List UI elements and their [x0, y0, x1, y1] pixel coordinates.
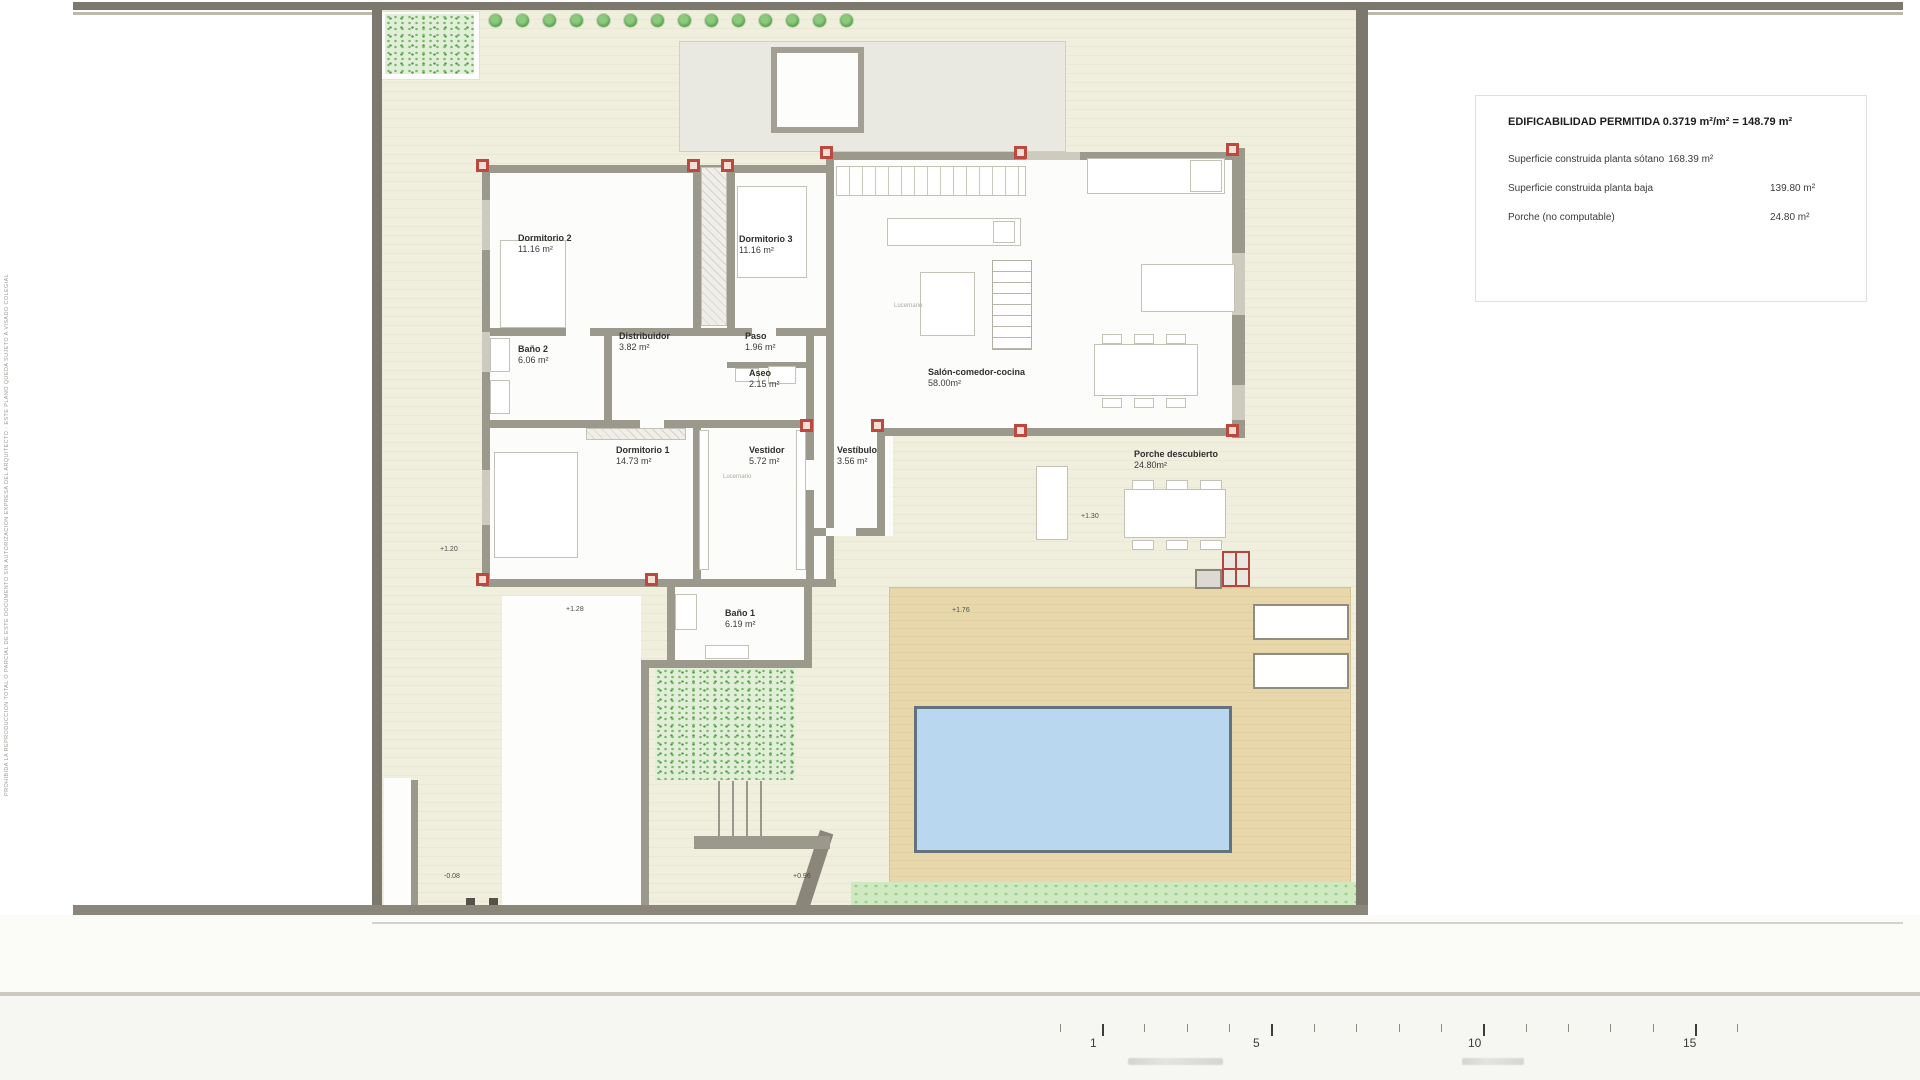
room-area: 11.16 m² — [518, 244, 668, 255]
plot-ground: Dormitorio 211.16 m²Dormitorio 311.16 m²… — [382, 10, 1356, 907]
room-area: 14.73 m² — [616, 456, 766, 467]
shrub-icon — [786, 14, 799, 27]
furniture — [1134, 398, 1154, 408]
scale-tick — [1441, 1024, 1442, 1032]
shrub-icon — [651, 14, 664, 27]
column-marker — [820, 146, 833, 159]
scale-tick — [1610, 1024, 1611, 1032]
shrub-icon — [759, 14, 772, 27]
wall — [641, 666, 649, 912]
level-annotation: +0.96 — [793, 873, 833, 882]
floor-plan-sheet: Dormitorio 211.16 m²Dormitorio 311.16 m²… — [0, 0, 1920, 1080]
column-marker — [871, 419, 884, 432]
furniture — [1190, 160, 1222, 192]
wall — [693, 165, 701, 336]
scale-tick — [1187, 1024, 1188, 1032]
tree-canopy — [385, 14, 474, 74]
room-name: Dormitorio 1 — [616, 445, 766, 456]
scale-number: 5 — [1253, 1036, 1277, 1050]
room-name: Vestíbulo — [837, 445, 987, 456]
north-boundary-thin-left — [73, 12, 380, 15]
scale-tick — [1060, 1024, 1061, 1032]
exterior-stairs — [706, 781, 768, 836]
scale-tick — [1314, 1024, 1315, 1032]
wall — [727, 165, 735, 328]
wall — [667, 587, 675, 666]
room-name: Paso — [745, 331, 895, 342]
room-area: 3.56 m² — [837, 456, 987, 467]
room-name: Baño 1 — [725, 608, 875, 619]
furniture — [705, 645, 749, 659]
room-label-bano-1: Baño 16.19 m² — [725, 608, 875, 630]
room-area: 58.00m² — [928, 378, 1078, 389]
east-boundary-line — [1356, 2, 1368, 912]
window-opening — [482, 200, 490, 250]
wall — [482, 579, 836, 587]
window-opening — [482, 470, 490, 525]
scale-number: 15 — [1683, 1036, 1707, 1050]
wall — [482, 165, 832, 173]
furniture — [1200, 540, 1222, 550]
window-opening — [1026, 152, 1080, 160]
furniture — [1102, 334, 1122, 344]
room-name: Dormitorio 2 — [518, 233, 668, 244]
scale-tick — [1653, 1024, 1654, 1032]
legend-label: Superficie construida planta baja — [1508, 183, 1653, 194]
scale-tick — [1568, 1024, 1569, 1032]
column-marker — [687, 159, 700, 172]
shrub-icon — [597, 14, 610, 27]
north-boundary-thin-right — [1368, 12, 1903, 15]
room-name: Porche descubierto — [1134, 449, 1284, 460]
illegible-caption — [1128, 1058, 1223, 1065]
door-opening — [640, 420, 664, 428]
room-label-salon: Salón-comedor-cocina58.00m² — [928, 367, 1078, 389]
column-marker — [476, 159, 489, 172]
window-opening — [1232, 385, 1245, 420]
level-annotation: +1.76 — [952, 607, 992, 616]
room-name: Aseo — [749, 368, 899, 379]
barbecue-grid — [1222, 551, 1250, 587]
road-surface — [0, 996, 1920, 1080]
garden-strip — [851, 882, 1356, 906]
shrub-icon — [570, 14, 583, 27]
west-boundary-line — [372, 2, 382, 912]
scale-tick — [1695, 1024, 1697, 1036]
scale-number: 1 — [1090, 1036, 1114, 1050]
legend-value: 139.80 m² — [1770, 183, 1815, 194]
legend-box: EDIFICABILIDAD PERMITIDA 0.3719 m²/m² = … — [1475, 95, 1867, 302]
room-area: 24.80m² — [1134, 460, 1284, 471]
furniture — [1200, 480, 1222, 490]
furniture — [1102, 398, 1122, 408]
shrub-icon — [516, 14, 529, 27]
room-area: 2.15 m² — [749, 379, 899, 390]
level-annotation: -0.08 — [444, 873, 484, 882]
wall — [411, 780, 418, 912]
room-area: 6.19 m² — [725, 619, 875, 630]
furniture — [1166, 334, 1186, 344]
skylight-roof — [679, 41, 1066, 152]
furniture — [1141, 264, 1235, 312]
wall — [885, 428, 1245, 436]
level-annotation: +1.28 — [566, 606, 606, 615]
scale-tick — [1356, 1024, 1357, 1032]
furniture — [1132, 540, 1154, 550]
wall — [694, 836, 830, 849]
outdoor-fixture — [1195, 569, 1222, 589]
illegible-caption — [1462, 1058, 1524, 1065]
shrub-icon — [624, 14, 637, 27]
shrub-icon — [489, 14, 502, 27]
shrub-icon — [705, 14, 718, 27]
scale-tick — [1526, 1024, 1527, 1032]
room-label-dormitorio-3: Dormitorio 311.16 m² — [739, 234, 889, 256]
level-annotation: +1.20 — [440, 546, 480, 555]
scale-number: 10 — [1468, 1036, 1492, 1050]
column-marker — [1226, 424, 1239, 437]
shrub-icon — [840, 14, 853, 27]
wardrobe — [586, 428, 686, 440]
chimney — [771, 47, 864, 133]
furniture — [490, 380, 510, 414]
column-marker — [1014, 146, 1027, 159]
swimming-pool — [914, 706, 1232, 853]
scale-tick — [1144, 1024, 1145, 1032]
furniture — [737, 186, 807, 278]
driveway — [384, 778, 411, 912]
furniture — [1166, 398, 1186, 408]
wall — [604, 328, 612, 428]
room-label-dormitorio-1: Dormitorio 114.73 m² — [616, 445, 766, 467]
shrub-icon — [678, 14, 691, 27]
furniture — [1132, 480, 1154, 490]
door-opening — [826, 528, 856, 536]
column-marker — [1226, 143, 1239, 156]
window-opening — [482, 332, 490, 372]
furniture — [494, 452, 578, 558]
kitchen-cabinet-run — [836, 166, 1026, 196]
shrub-icon — [543, 14, 556, 27]
driveway — [502, 596, 641, 912]
garden-patch — [655, 668, 795, 780]
scale-tick — [1229, 1024, 1230, 1032]
room-name: Dormitorio 3 — [739, 234, 889, 245]
scale-tick — [1399, 1024, 1400, 1032]
legend-row: Porche (no computable)24.80 m² — [1508, 212, 1838, 223]
furniture — [1036, 466, 1068, 540]
room-area: 11.16 m² — [739, 245, 889, 256]
legend-value: 168.39 m² — [1668, 154, 1713, 165]
wardrobe — [701, 167, 727, 326]
furniture — [1166, 540, 1188, 550]
margin-legal-note: PROHIBIDA LA REPRODUCCION TOTAL O PARCIA… — [4, 272, 17, 796]
north-boundary-line — [73, 2, 1903, 10]
room-label-porche: Porche descubierto24.80m² — [1134, 449, 1284, 471]
south-boundary-line — [73, 905, 1368, 915]
column-marker — [800, 419, 813, 432]
shrub-icon — [813, 14, 826, 27]
level-annotation: +1.30 — [1081, 513, 1121, 522]
scale-tick — [1102, 1024, 1104, 1036]
column-marker — [476, 573, 489, 586]
legend-value: 24.80 m² — [1770, 212, 1809, 223]
furniture — [1124, 489, 1226, 538]
door-opening — [566, 328, 590, 336]
legend-title: EDIFICABILIDAD PERMITIDA 0.3719 m²/m² = … — [1508, 116, 1792, 128]
sun-lounger — [1253, 604, 1349, 640]
legend-label: Superficie construida planta sótano — [1508, 154, 1664, 165]
furniture — [993, 221, 1015, 243]
room-label-dormitorio-2: Dormitorio 211.16 m² — [518, 233, 668, 255]
kerb-line — [372, 922, 1903, 924]
furniture — [490, 338, 510, 372]
sun-lounger — [1253, 653, 1349, 689]
room-area: 1.96 m² — [745, 342, 895, 353]
scale-tick — [1483, 1024, 1485, 1036]
sidewalk-band — [0, 915, 1920, 993]
skylight-label: Lucernario — [894, 303, 964, 311]
legend-row: Superficie construida planta sótano168.3… — [1508, 154, 1838, 165]
room-name: Salón-comedor-cocina — [928, 367, 1078, 378]
furniture — [1094, 344, 1198, 396]
room-area: 6.06 m² — [518, 355, 668, 366]
interior-staircase — [992, 260, 1032, 350]
legend-row: Superficie construida planta baja139.80 … — [1508, 183, 1838, 194]
furniture — [675, 594, 697, 630]
furniture — [1166, 480, 1188, 490]
column-marker — [1014, 424, 1027, 437]
scale-tick — [1271, 1024, 1273, 1036]
wall — [826, 152, 1026, 160]
room-label-vestibulo: Vestíbulo3.56 m² — [837, 445, 987, 467]
shrub-icon — [732, 14, 745, 27]
furniture — [1134, 334, 1154, 344]
room-label-paso: Paso1.96 m² — [745, 331, 895, 353]
skylight-label: Lucernario — [723, 474, 793, 482]
column-marker — [645, 573, 658, 586]
column-marker — [721, 159, 734, 172]
scale-tick — [1737, 1024, 1738, 1032]
wall — [641, 660, 812, 668]
room-label-aseo: Aseo2.15 m² — [749, 368, 899, 390]
legend-label: Porche (no computable) — [1508, 212, 1615, 223]
